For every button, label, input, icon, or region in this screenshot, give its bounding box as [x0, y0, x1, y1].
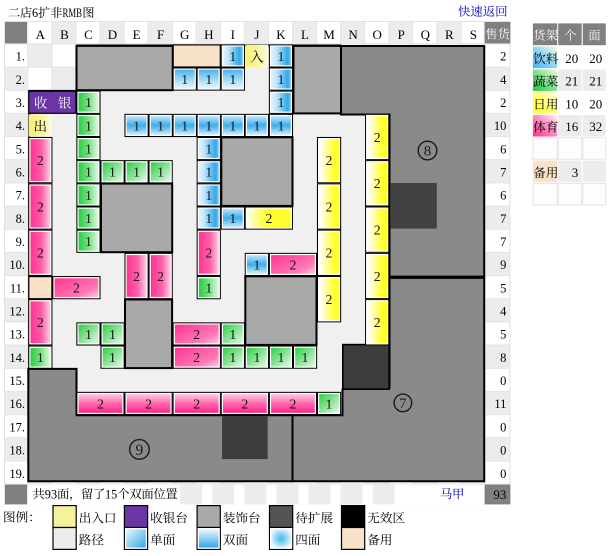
svg-text:1: 1	[277, 72, 284, 87]
svg-text:19.: 19.	[9, 467, 25, 481]
svg-text:2: 2	[326, 246, 333, 261]
svg-text:2: 2	[205, 246, 212, 261]
svg-text:6: 6	[500, 189, 506, 203]
svg-text:10: 10	[494, 119, 507, 133]
svg-text:P: P	[398, 27, 405, 42]
svg-text:A: A	[36, 27, 46, 42]
svg-text:20: 20	[589, 96, 602, 111]
svg-text:0: 0	[500, 374, 506, 388]
svg-text:13.: 13.	[9, 328, 25, 342]
svg-text:5: 5	[500, 328, 506, 342]
svg-text:R: R	[445, 27, 454, 42]
svg-text:11: 11	[494, 397, 506, 411]
svg-text:2: 2	[193, 327, 200, 342]
svg-text:1: 1	[277, 350, 284, 365]
svg-text:2: 2	[326, 153, 333, 168]
svg-text:10: 10	[565, 96, 578, 111]
svg-text:7: 7	[500, 166, 506, 180]
svg-text:1: 1	[181, 72, 188, 87]
svg-text:2: 2	[374, 130, 381, 145]
svg-text:2: 2	[37, 315, 44, 330]
svg-text:1: 1	[205, 118, 212, 133]
svg-text:16.: 16.	[9, 397, 25, 411]
svg-text:S: S	[470, 27, 477, 42]
svg-text:1: 1	[205, 281, 212, 296]
svg-text:0: 0	[500, 420, 506, 434]
svg-text:1.: 1.	[16, 50, 25, 64]
svg-text:1: 1	[205, 211, 212, 226]
svg-text:2: 2	[145, 396, 152, 411]
svg-text:2: 2	[374, 176, 381, 191]
svg-text:1: 1	[157, 118, 164, 133]
svg-text:1: 1	[229, 211, 236, 226]
svg-text:C: C	[84, 27, 93, 42]
svg-text:1: 1	[253, 118, 260, 133]
svg-text:1: 1	[277, 95, 284, 110]
svg-text:1: 1	[229, 350, 236, 365]
svg-text:1: 1	[253, 257, 260, 272]
svg-text:1: 1	[133, 118, 140, 133]
svg-text:8: 8	[500, 351, 506, 365]
svg-text:1: 1	[85, 327, 92, 342]
svg-text:2: 2	[290, 396, 297, 411]
svg-text:7.: 7.	[16, 189, 25, 203]
svg-text:18.: 18.	[9, 444, 25, 458]
svg-text:3.: 3.	[16, 96, 25, 110]
svg-text:2: 2	[374, 223, 381, 238]
svg-text:4: 4	[500, 73, 507, 87]
svg-text:1: 1	[133, 165, 140, 180]
svg-text:1: 1	[277, 118, 284, 133]
svg-text:2: 2	[241, 396, 248, 411]
svg-text:1: 1	[157, 165, 164, 180]
svg-text:5: 5	[500, 281, 506, 295]
svg-text:M: M	[323, 27, 335, 42]
svg-text:20: 20	[589, 51, 602, 66]
svg-text:12.: 12.	[9, 305, 25, 319]
svg-text:9: 9	[500, 258, 506, 272]
svg-text:1: 1	[229, 72, 236, 87]
svg-text:17.: 17.	[9, 420, 25, 434]
svg-text:1: 1	[109, 350, 116, 365]
svg-text:2: 2	[37, 246, 44, 261]
svg-text:7: 7	[500, 235, 506, 249]
svg-text:1: 1	[85, 165, 92, 180]
svg-text:4: 4	[500, 305, 507, 319]
svg-text:1: 1	[109, 327, 116, 342]
svg-text:15: 15	[105, 487, 117, 501]
svg-text:21: 21	[589, 74, 602, 89]
svg-text:1: 1	[326, 396, 333, 411]
svg-text:2: 2	[97, 396, 104, 411]
svg-text:7: 7	[399, 396, 406, 412]
svg-text:1: 1	[109, 165, 116, 180]
svg-text:2: 2	[157, 269, 164, 284]
svg-text:6: 6	[500, 142, 506, 156]
svg-text:1: 1	[205, 142, 212, 157]
svg-text:1: 1	[85, 95, 92, 110]
svg-text:7: 7	[500, 212, 506, 226]
svg-text:14.: 14.	[9, 351, 25, 365]
svg-text:1: 1	[277, 49, 284, 64]
svg-text:2: 2	[500, 50, 506, 64]
svg-text:8.: 8.	[16, 212, 25, 226]
svg-text:32: 32	[589, 119, 602, 134]
svg-text:0: 0	[500, 467, 506, 481]
svg-text:9: 9	[136, 442, 144, 459]
svg-text:1: 1	[37, 350, 44, 365]
svg-text:6.: 6.	[16, 166, 25, 180]
svg-text:6: 6	[32, 6, 38, 20]
svg-text:1: 1	[85, 118, 92, 133]
svg-text:2: 2	[37, 153, 44, 168]
svg-text:2: 2	[265, 211, 272, 226]
svg-text:Q: Q	[421, 27, 431, 42]
svg-text:2: 2	[37, 199, 44, 214]
svg-text:2: 2	[193, 350, 200, 365]
svg-text:93: 93	[493, 487, 506, 502]
svg-text:1: 1	[181, 118, 188, 133]
svg-text:H: H	[204, 27, 213, 42]
svg-text:1: 1	[302, 350, 309, 365]
svg-text:1: 1	[205, 72, 212, 87]
svg-text:1: 1	[253, 350, 260, 365]
svg-text:1: 1	[85, 188, 92, 203]
svg-text:RMB: RMB	[63, 6, 83, 20]
svg-text:K: K	[276, 27, 286, 42]
svg-text:3: 3	[572, 165, 579, 180]
svg-text:1: 1	[85, 211, 92, 226]
svg-text:1: 1	[205, 165, 212, 180]
svg-text:2: 2	[290, 257, 297, 272]
svg-text:2: 2	[326, 199, 333, 214]
svg-text:L: L	[301, 27, 309, 42]
svg-text:15.: 15.	[9, 374, 25, 388]
svg-text:2: 2	[326, 292, 333, 307]
svg-text:O: O	[373, 27, 382, 42]
svg-text:1: 1	[229, 49, 236, 64]
svg-text:0: 0	[500, 444, 506, 458]
svg-text:2: 2	[500, 96, 506, 110]
svg-text:8: 8	[424, 144, 432, 160]
svg-text:D: D	[108, 27, 117, 42]
svg-text:I: I	[231, 27, 235, 42]
svg-text:F: F	[157, 27, 164, 42]
svg-text:2.: 2.	[16, 73, 25, 87]
svg-text:11.: 11.	[10, 281, 25, 295]
svg-text:1: 1	[85, 234, 92, 249]
svg-text:E: E	[133, 27, 141, 42]
svg-text:1: 1	[85, 142, 92, 157]
svg-text:1: 1	[229, 118, 236, 133]
svg-text:1: 1	[205, 188, 212, 203]
svg-text:20: 20	[565, 51, 578, 66]
svg-text:1: 1	[229, 327, 236, 342]
svg-text:10.: 10.	[9, 258, 25, 272]
svg-text:9.: 9.	[16, 235, 25, 249]
svg-text:16: 16	[565, 119, 579, 134]
svg-text:21: 21	[565, 74, 578, 89]
svg-text:2: 2	[374, 269, 381, 284]
svg-text:5.: 5.	[16, 142, 25, 156]
svg-text:G: G	[180, 27, 189, 42]
svg-text:2: 2	[73, 281, 80, 296]
svg-text:4.: 4.	[16, 119, 25, 133]
svg-text:B: B	[60, 27, 69, 42]
svg-text:2: 2	[374, 315, 381, 330]
svg-text:93: 93	[45, 487, 57, 501]
svg-text:2: 2	[193, 396, 200, 411]
svg-text:N: N	[348, 27, 358, 42]
svg-text:2: 2	[133, 269, 140, 284]
svg-text:J: J	[254, 27, 259, 42]
